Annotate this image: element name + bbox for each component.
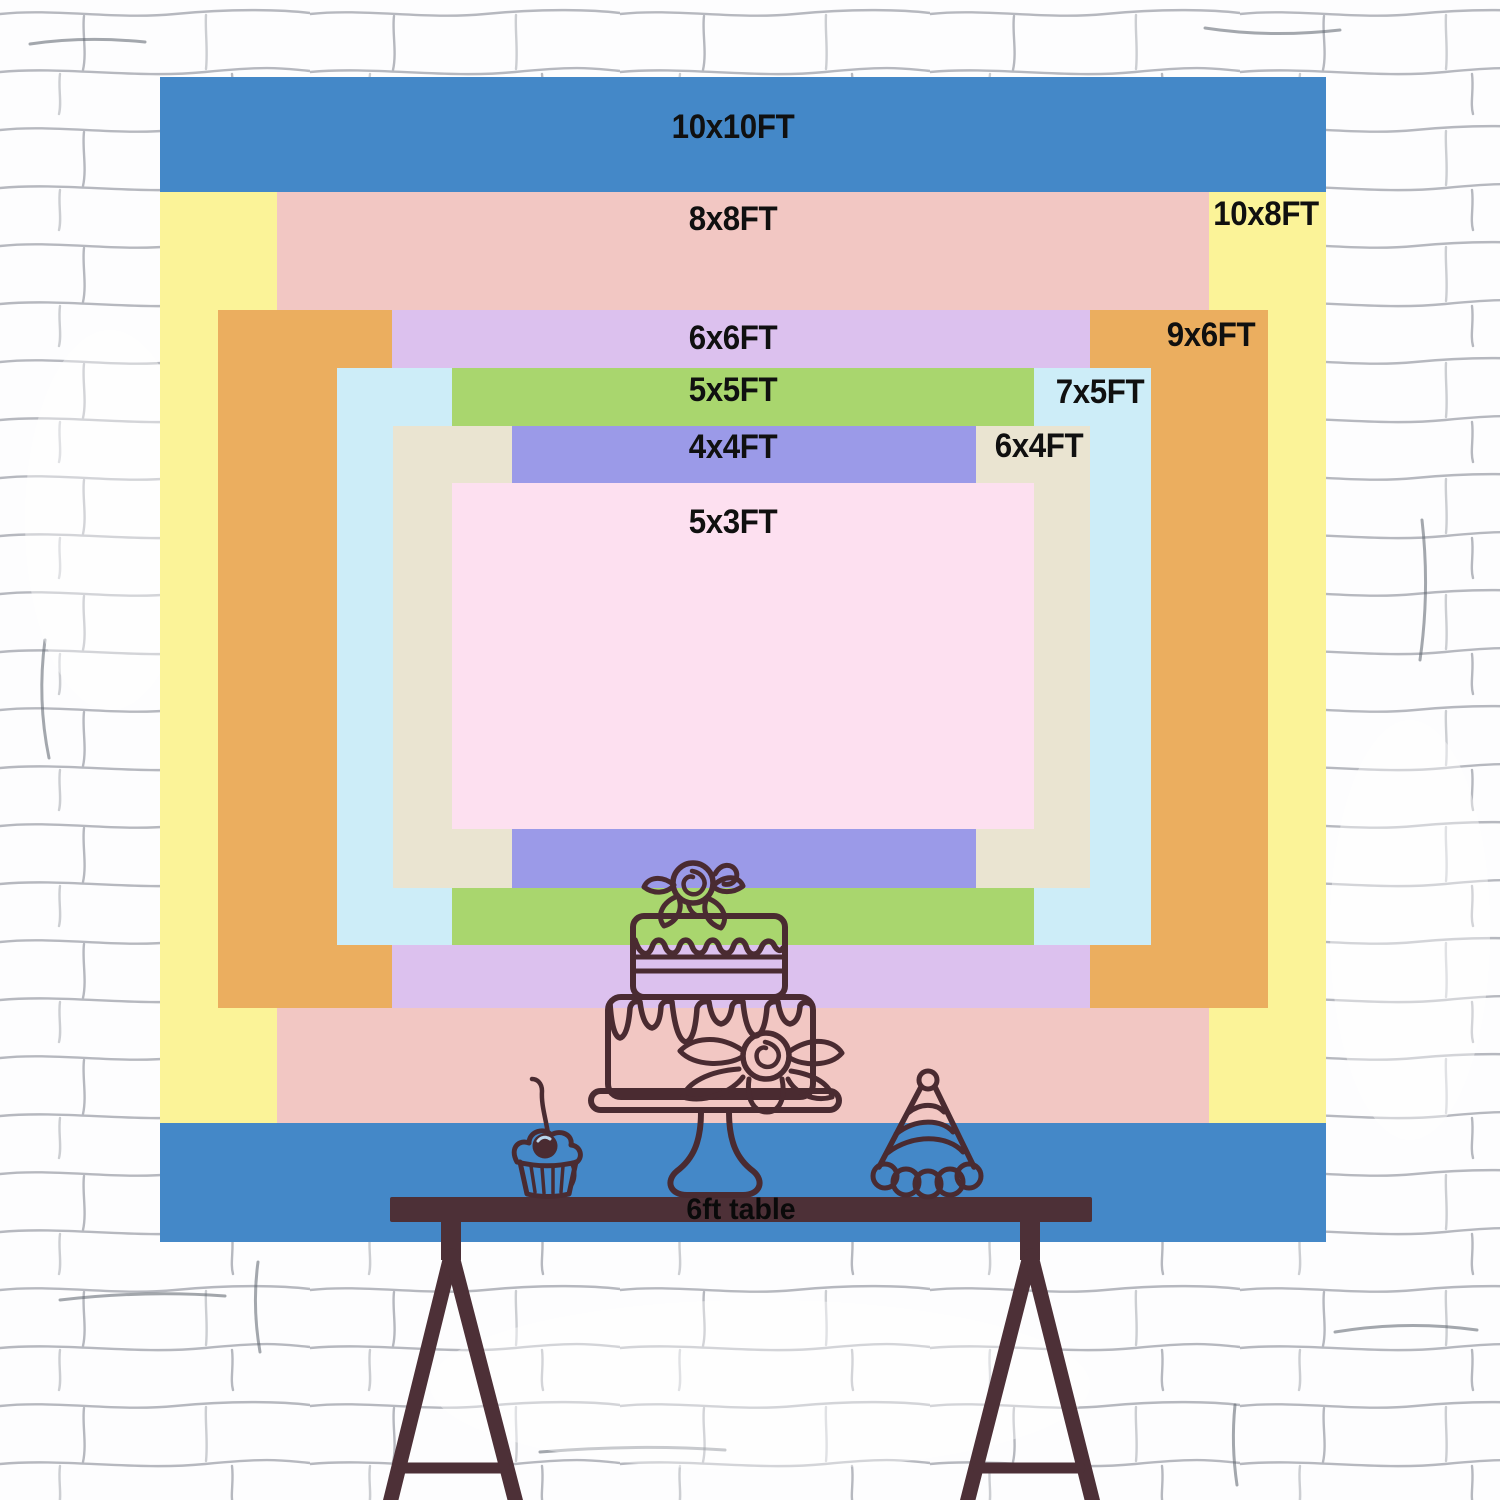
party-hat-icon [873, 1071, 981, 1197]
table-and-dessert-artwork [0, 0, 1500, 1500]
tiered-cake-icon [591, 863, 842, 1195]
trestle-table [390, 1197, 1093, 1500]
cupcake-icon [514, 1079, 580, 1197]
table-size-label: 6ft table [686, 1195, 795, 1225]
backdrop-size-chart: 10x10FT 8x8FT 10x8FT 6x6FT 9x6FT 5x5FT 7… [0, 0, 1500, 1500]
cake-side-flower [680, 1033, 842, 1112]
